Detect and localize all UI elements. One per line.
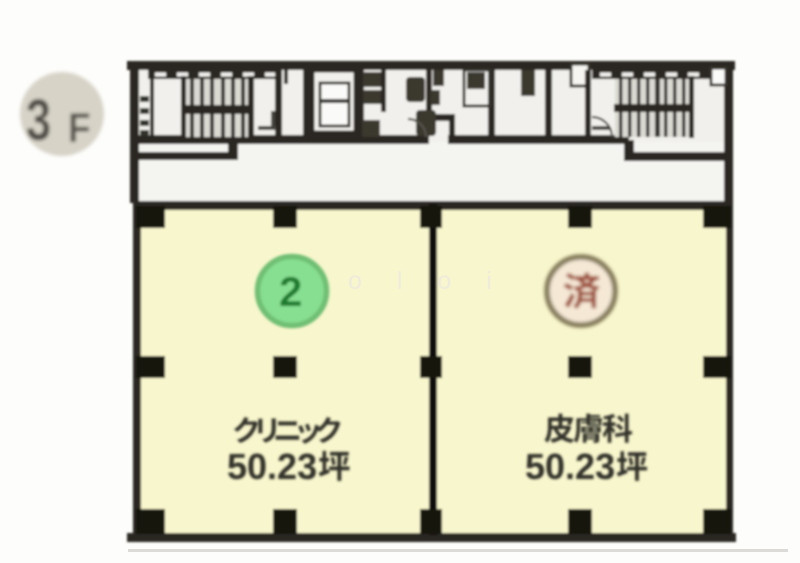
svg-text:50.23: 50.23 — [525, 446, 615, 487]
svg-text:F: F — [68, 105, 91, 152]
svg-text:3: 3 — [26, 89, 51, 154]
svg-text:50.23: 50.23 — [227, 446, 317, 487]
svg-text:o l o i: o l o i — [348, 267, 506, 295]
svg-text:2: 2 — [279, 268, 302, 315]
